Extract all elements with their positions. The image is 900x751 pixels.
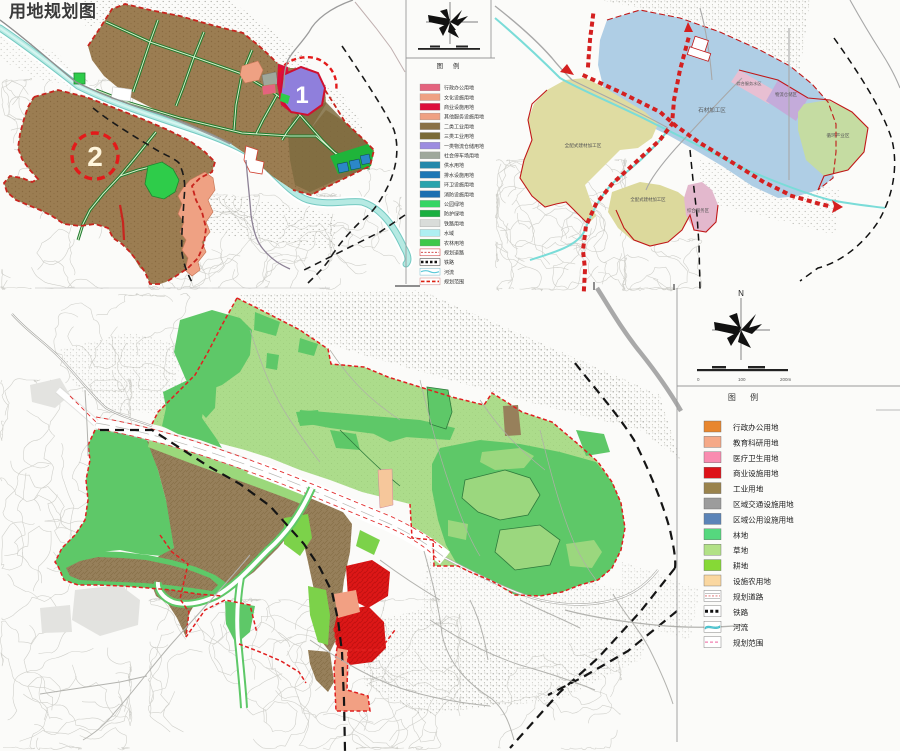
svg-text:医疗卫生用地: 医疗卫生用地 — [733, 453, 779, 463]
svg-text:规划范围: 规划范围 — [444, 279, 464, 286]
svg-text:图 例: 图 例 — [437, 61, 464, 70]
svg-text:石材加工区: 石材加工区 — [698, 106, 726, 114]
svg-text:供水用地: 供水用地 — [444, 162, 464, 169]
svg-text:林地: 林地 — [733, 530, 749, 540]
svg-text:其他服务设施用地: 其他服务设施用地 — [444, 114, 484, 121]
svg-text:规划道路: 规划道路 — [444, 250, 464, 257]
svg-text:1: 1 — [295, 82, 308, 109]
svg-text:环卫设施用地: 环卫设施用地 — [444, 182, 474, 189]
svg-text:行政办公用地: 行政办公用地 — [733, 422, 779, 432]
svg-text:排水设施用地: 排水设施用地 — [444, 172, 474, 179]
svg-text:综合服务区: 综合服务区 — [687, 207, 710, 214]
svg-text:一类物流仓储用地: 一类物流仓储用地 — [444, 143, 484, 150]
svg-text:三类工业用地: 三类工业用地 — [444, 133, 474, 140]
svg-text:公园绿地: 公园绿地 — [444, 201, 464, 208]
svg-text:商业设施用地: 商业设施用地 — [733, 468, 779, 478]
svg-text:区域交通设施用地: 区域交通设施用地 — [733, 499, 794, 509]
svg-text:200m: 200m — [780, 377, 792, 382]
svg-text:全配式建材加工区: 全配式建材加工区 — [565, 142, 602, 149]
svg-text:农林用地: 农林用地 — [444, 240, 464, 247]
svg-text:N: N — [738, 289, 744, 298]
svg-text:0: 0 — [697, 377, 700, 382]
svg-text:水域: 水域 — [444, 230, 454, 237]
svg-text:铁路用地: 铁路用地 — [444, 220, 464, 227]
svg-text:草地: 草地 — [733, 545, 749, 555]
svg-text:综合服务水区: 综合服务水区 — [736, 80, 761, 87]
svg-text:河流: 河流 — [444, 269, 454, 276]
svg-text:循环产业区: 循环产业区 — [827, 132, 850, 139]
svg-text:行政办公用地: 行政办公用地 — [444, 85, 474, 92]
svg-text:设施农用地: 设施农用地 — [733, 576, 771, 586]
svg-text:全配式建材加工区: 全配式建材加工区 — [630, 196, 666, 203]
svg-text:区域公用设施用地: 区域公用设施用地 — [733, 514, 794, 524]
svg-text:规划范围: 规划范围 — [733, 638, 763, 648]
svg-text:二类工业用地: 二类工业用地 — [444, 123, 474, 130]
svg-text:教育科研用地: 教育科研用地 — [733, 437, 779, 447]
svg-text:河流: 河流 — [733, 622, 749, 632]
svg-text:工业用地: 工业用地 — [733, 484, 764, 494]
svg-text:物流仓储区: 物流仓储区 — [775, 91, 798, 98]
svg-text:铁路: 铁路 — [733, 607, 749, 617]
svg-text:100: 100 — [738, 377, 746, 382]
svg-text:2: 2 — [87, 141, 103, 172]
svg-text:防护绿地: 防护绿地 — [444, 211, 464, 218]
svg-text:图 例: 图 例 — [728, 392, 764, 402]
svg-text:耕地: 耕地 — [733, 561, 749, 571]
svg-text:规划道路: 规划道路 — [733, 591, 764, 601]
svg-text:用地规划图: 用地规划图 — [9, 1, 97, 21]
svg-text:商业设施用地: 商业设施用地 — [444, 104, 474, 111]
svg-text:铁路: 铁路 — [444, 259, 454, 266]
svg-text:消防设施用地: 消防设施用地 — [444, 191, 474, 198]
svg-text:社会停车场用地: 社会停车场用地 — [444, 153, 479, 160]
svg-text:文化设施用地: 文化设施用地 — [444, 94, 474, 101]
